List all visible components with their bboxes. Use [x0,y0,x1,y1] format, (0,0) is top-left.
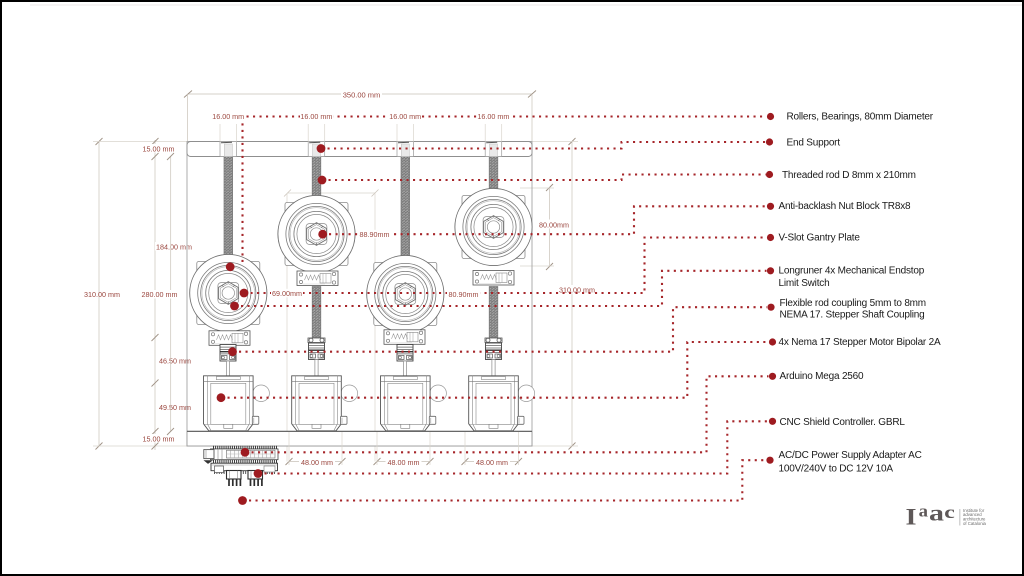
svg-text:88.90mm: 88.90mm [360,230,390,239]
svg-text:69.00mm: 69.00mm [272,289,302,298]
svg-text:48.00 mm: 48.00 mm [388,458,420,467]
svg-text:48.00 mm: 48.00 mm [476,458,508,467]
svg-text:Longruner 4x Mechanical Endsto: Longruner 4x Mechanical Endstop [779,266,925,277]
svg-text:CNC Shield Controller. GBRL: CNC Shield Controller. GBRL [780,417,906,428]
svg-text:48.00 mm: 48.00 mm [301,458,333,467]
svg-text:V-Slot Gantry Plate: V-Slot Gantry Plate [779,233,861,244]
svg-text:16.00 mm: 16.00 mm [477,112,509,121]
svg-text:4x Nema 17 Stepper Motor Bipol: 4x Nema 17 Stepper Motor Bipolar 2A [779,337,942,348]
svg-text:100V/240V to DC 12V 10A: 100V/240V to DC 12V 10A [779,463,894,474]
svg-text:15.00 mm: 15.00 mm [143,435,175,444]
svg-text:46.50 mm: 46.50 mm [159,357,191,366]
svg-text:Threaded rod D 8mm x 210mm: Threaded rod D 8mm x 210mm [782,170,916,181]
svg-text:Anti-backlash Nut Block TR8x8: Anti-backlash Nut Block TR8x8 [779,201,911,212]
svg-text:16.00 mm: 16.00 mm [212,112,244,121]
svg-text:I: I [906,505,917,530]
svg-text:Rollers, Bearings, 80mm Diamet: Rollers, Bearings, 80mm Diameter [787,112,934,123]
svg-text:16.00 mm: 16.00 mm [389,112,421,121]
svg-text:310.00 mm: 310.00 mm [84,290,120,299]
svg-text:a: a [929,501,944,527]
svg-text:of Catalonia: of Catalonia [963,521,987,526]
svg-text:a: a [919,502,928,521]
svg-text:16.00 mm: 16.00 mm [300,112,332,121]
svg-text:Flexible rod coupling 5mm to 8: Flexible rod coupling 5mm to 8mm [780,298,926,309]
svg-text:350.00 mm: 350.00 mm [343,91,381,100]
svg-text:End Support: End Support [787,138,841,149]
svg-text:280.00 mm: 280.00 mm [142,290,178,299]
svg-text:15.00 mm: 15.00 mm [143,145,175,154]
svg-text:49.50 mm: 49.50 mm [159,403,191,412]
svg-text:Arduino Mega 2560: Arduino Mega 2560 [780,371,865,382]
svg-text:80.00mm: 80.00mm [539,221,569,230]
svg-text:c: c [944,502,955,522]
svg-text:Limit Switch: Limit Switch [779,278,830,289]
svg-text:80.90mm: 80.90mm [449,290,479,299]
svg-text:AC/DC Power Supply Adapter AC: AC/DC Power Supply Adapter AC [779,450,922,461]
svg-text:NEMA 17. Stepper Shaft Couplin: NEMA 17. Stepper Shaft Coupling [780,310,925,321]
